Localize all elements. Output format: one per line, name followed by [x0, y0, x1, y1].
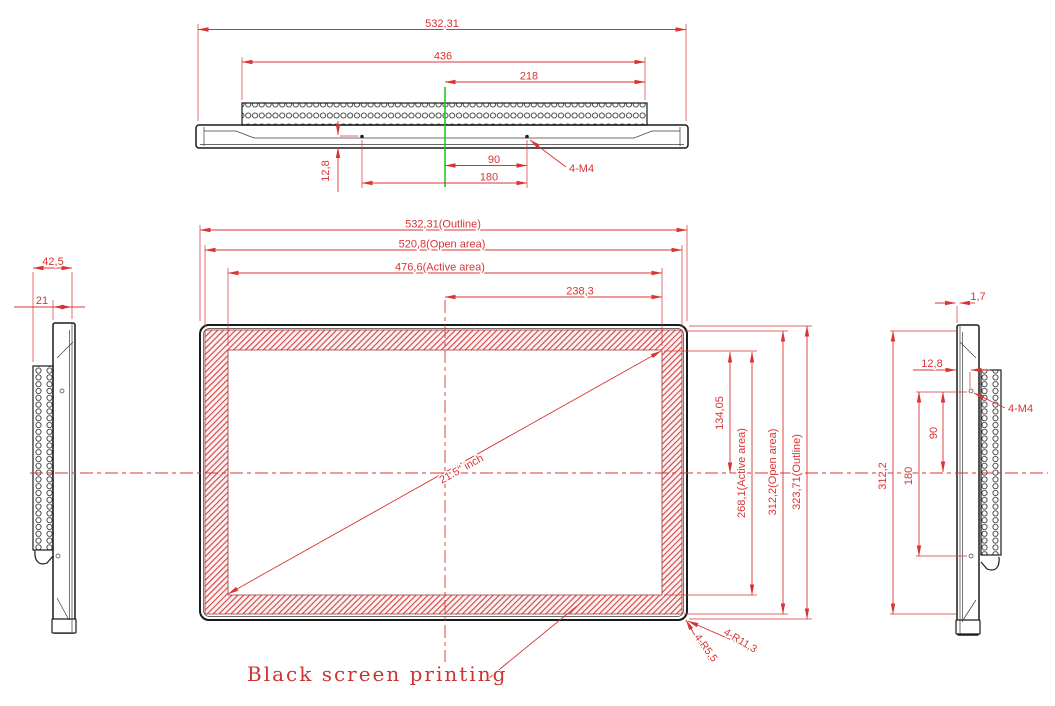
dim-label: 42,5	[42, 256, 63, 268]
dim-label: 268,1(Active area)	[736, 428, 748, 518]
dim-label: 238,3	[566, 286, 594, 298]
dim-label: 436	[434, 51, 452, 63]
top-view-mount-hole-right	[525, 135, 529, 139]
dim-label: 180	[480, 172, 498, 184]
drawing-canvas: 532,31 436 218 12,8 90 180 4-M4 532,31(O…	[0, 0, 1055, 706]
left-view-bottom-cap	[52, 619, 76, 633]
dim-label: 520,8(Open area)	[399, 239, 486, 251]
dim-label: 12,8	[921, 358, 942, 370]
dim-label: 21	[36, 295, 48, 307]
dim-label: 180	[903, 467, 915, 485]
dim-label: 4-M4	[569, 163, 594, 175]
dim-label: 4-M4	[1008, 403, 1033, 415]
right-view-bottom-cap	[956, 620, 980, 634]
dim-label: 312,2(Open area)	[767, 429, 779, 516]
dim-label: 90	[488, 154, 500, 166]
top-view-mount-hole-left	[360, 135, 364, 139]
dim-label: 1,7	[970, 291, 985, 303]
dim-label: 134,05	[714, 396, 726, 430]
dim-label: 12,8	[320, 160, 332, 181]
dim-label: 476,6(Active area)	[395, 262, 485, 274]
technical-drawing-page: 532,31 436 218 12,8 90 180 4-M4 532,31(O…	[0, 0, 1055, 706]
note-label: Black screen printing	[247, 662, 507, 686]
dim-label: 532,31(Outline)	[405, 219, 481, 231]
dim-label: 218	[520, 71, 538, 83]
dim-label: 90	[928, 427, 940, 439]
dim-label: 323,71(Outline)	[791, 434, 803, 510]
left-view-vent-grille	[33, 366, 53, 550]
dim-label: 312,2	[877, 462, 889, 490]
dim-label: 532,31	[425, 18, 459, 30]
